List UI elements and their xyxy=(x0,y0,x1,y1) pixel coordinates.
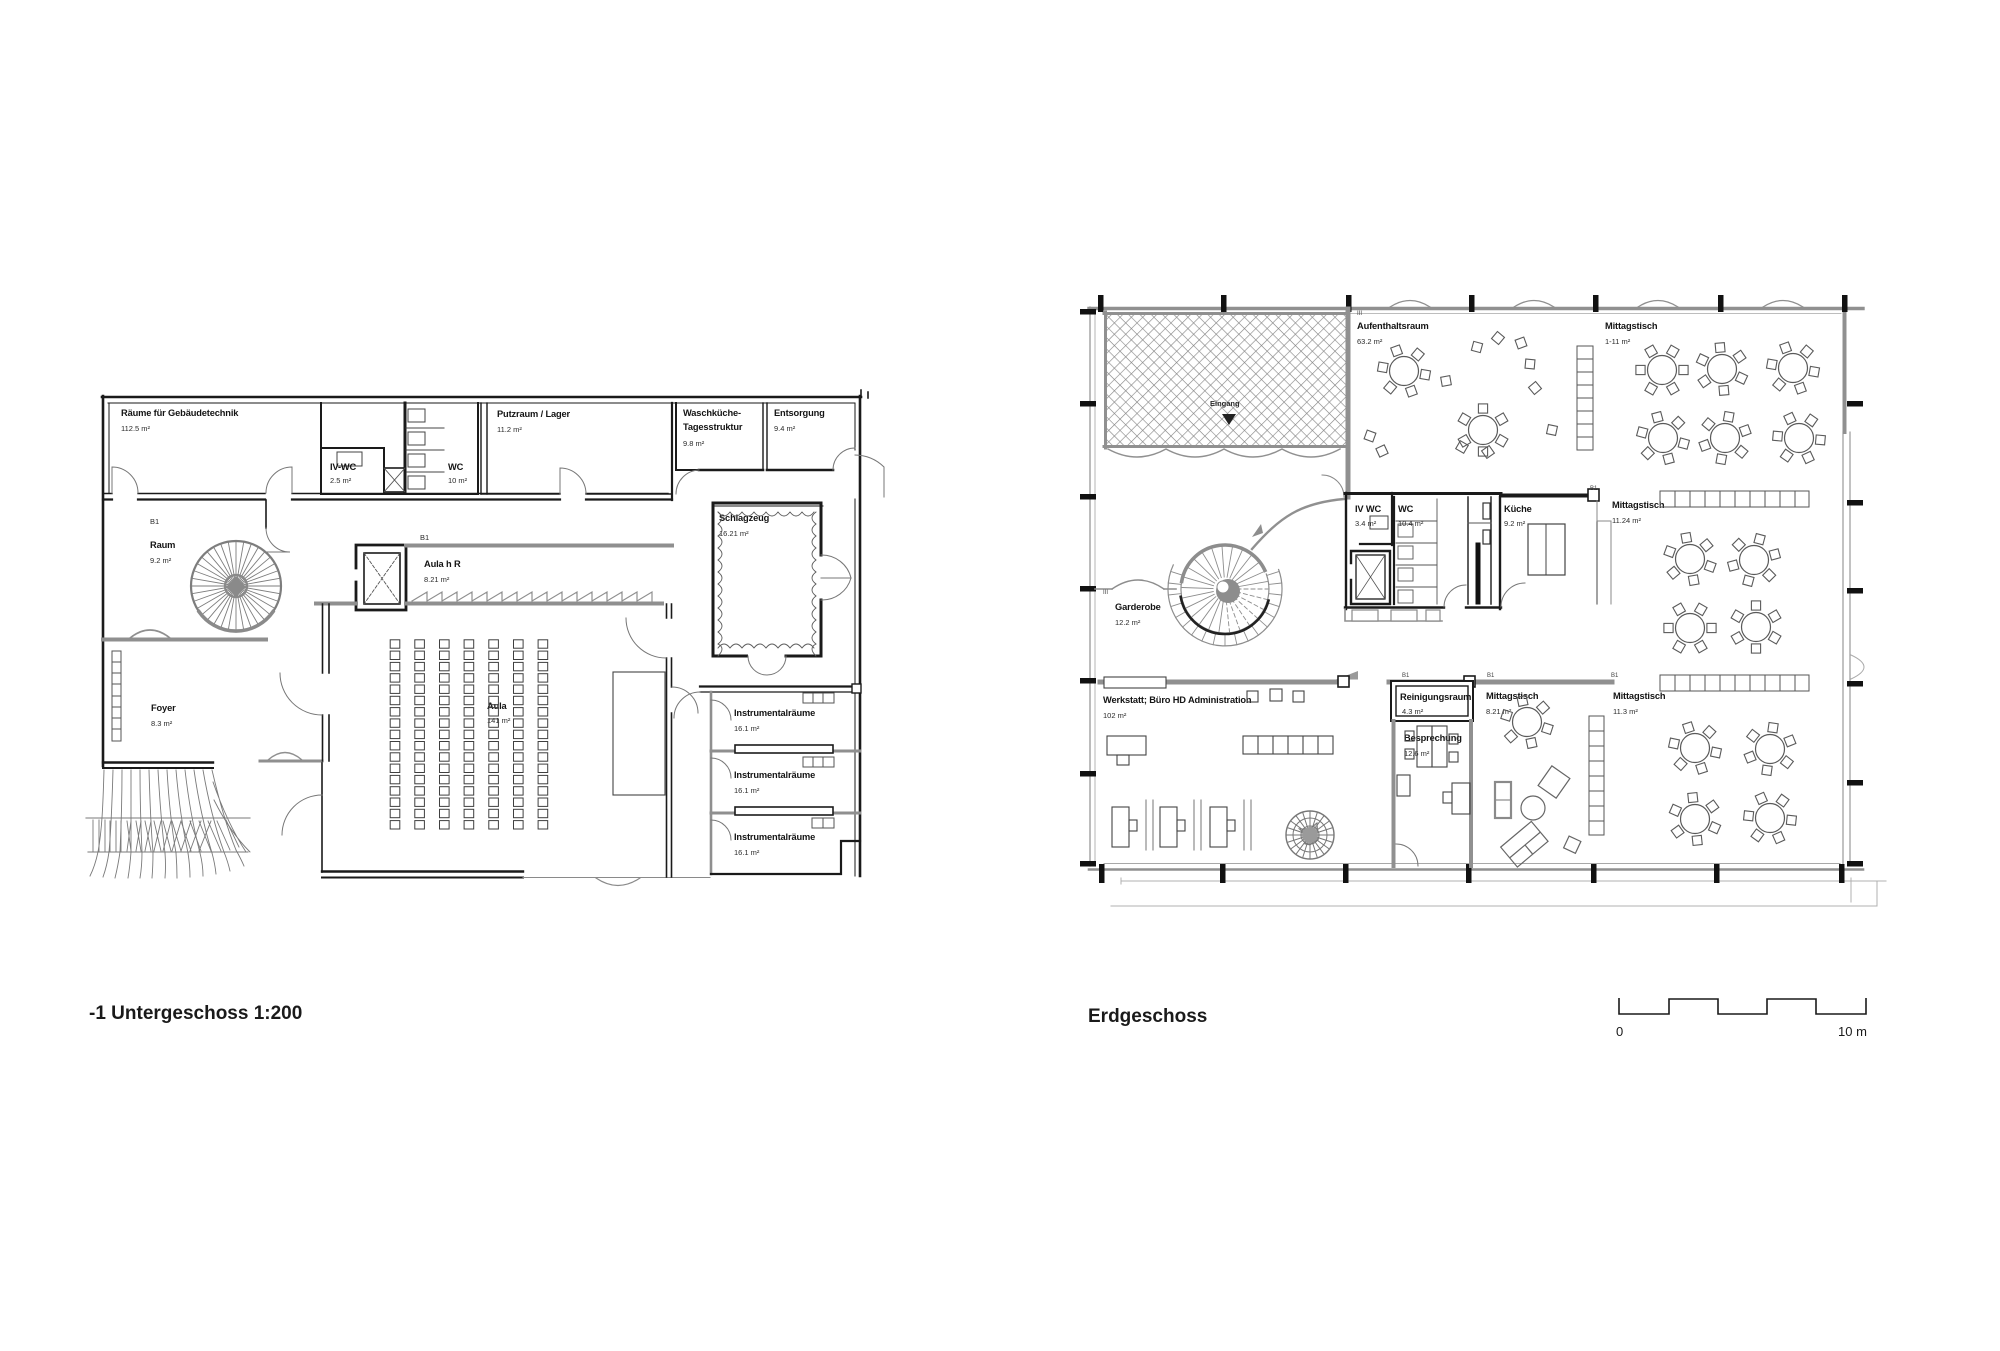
svg-text:9.2 m²: 9.2 m² xyxy=(1504,519,1526,528)
svg-text:Garderobe: Garderobe xyxy=(1115,602,1161,612)
svg-text:10.4 m²: 10.4 m² xyxy=(1398,519,1424,528)
svg-text:Waschküche-: Waschküche- xyxy=(683,408,741,418)
svg-text:WC: WC xyxy=(1398,504,1414,514)
svg-text:1-11 m²: 1-11 m² xyxy=(1605,337,1631,346)
svg-text:Entsorgung: Entsorgung xyxy=(774,408,825,418)
svg-text:141 m²: 141 m² xyxy=(487,716,511,725)
svg-text:IV-WC: IV-WC xyxy=(330,462,357,472)
svg-text:4.3 m²: 4.3 m² xyxy=(1402,707,1424,716)
svg-text:B1: B1 xyxy=(420,533,429,542)
svg-text:16.21 m²: 16.21 m² xyxy=(719,529,749,538)
svg-text:11.3 m²: 11.3 m² xyxy=(1613,707,1638,716)
svg-text:Instrumentalräume: Instrumentalräume xyxy=(734,832,815,842)
svg-text:11.2 m²: 11.2 m² xyxy=(497,425,522,434)
svg-text:Putzraum / Lager: Putzraum / Lager xyxy=(497,409,571,419)
svg-text:9.8 m²: 9.8 m² xyxy=(683,439,705,448)
svg-text:Aula h R: Aula h R xyxy=(424,559,461,569)
svg-text:B1: B1 xyxy=(1590,486,1598,492)
svg-text:63.2 m²: 63.2 m² xyxy=(1357,337,1383,346)
svg-text:0: 0 xyxy=(1616,1024,1623,1039)
svg-text:Eingang: Eingang xyxy=(1210,399,1240,408)
svg-text:Mittagstisch: Mittagstisch xyxy=(1613,691,1666,701)
svg-text:III: III xyxy=(1357,311,1362,317)
svg-text:3.4 m²: 3.4 m² xyxy=(1355,519,1377,528)
svg-text:9.4 m²: 9.4 m² xyxy=(774,424,796,433)
svg-text:8.3 m²: 8.3 m² xyxy=(151,719,173,728)
svg-text:Werkstatt; Büro HD Administrat: Werkstatt; Büro HD Administration xyxy=(1103,695,1252,705)
svg-text:Erdgeschoss: Erdgeschoss xyxy=(1088,1006,1207,1027)
svg-text:Reinigungsraum: Reinigungsraum xyxy=(1400,692,1471,702)
svg-text:10 m: 10 m xyxy=(1838,1024,1867,1039)
svg-text:8.21 m²: 8.21 m² xyxy=(424,575,450,584)
svg-text:16.1 m²: 16.1 m² xyxy=(734,848,760,857)
svg-text:Küche: Küche xyxy=(1504,504,1532,514)
svg-text:Instrumentalräume: Instrumentalräume xyxy=(734,770,815,780)
svg-text:B1: B1 xyxy=(1611,673,1619,679)
svg-text:Foyer: Foyer xyxy=(151,703,176,713)
svg-text:Raum: Raum xyxy=(150,540,175,550)
svg-text:11.24 m²: 11.24 m² xyxy=(1612,516,1642,525)
svg-text:Mittagstisch: Mittagstisch xyxy=(1612,500,1665,510)
svg-text:WC: WC xyxy=(448,462,464,472)
svg-text:IV WC: IV WC xyxy=(1355,504,1382,514)
svg-text:12.2 m²: 12.2 m² xyxy=(1115,618,1141,627)
svg-text:Mittagstisch: Mittagstisch xyxy=(1486,691,1539,701)
svg-text:III: III xyxy=(1103,590,1108,596)
svg-text:Instrumentalräume: Instrumentalräume xyxy=(734,708,815,718)
svg-text:10 m²: 10 m² xyxy=(448,476,468,485)
svg-text:Mittagstisch: Mittagstisch xyxy=(1605,321,1658,331)
svg-text:B1: B1 xyxy=(150,517,159,526)
svg-text:Räume für Gebäudetechnik: Räume für Gebäudetechnik xyxy=(121,408,239,418)
svg-text:16.1 m²: 16.1 m² xyxy=(734,786,760,795)
svg-text:Aufenthaltsraum: Aufenthaltsraum xyxy=(1357,321,1429,331)
svg-text:112.5 m²: 112.5 m² xyxy=(121,424,151,433)
svg-text:2.5 m²: 2.5 m² xyxy=(330,476,352,485)
svg-text:102 m²: 102 m² xyxy=(1103,711,1127,720)
svg-text:Tagesstruktur: Tagesstruktur xyxy=(683,422,743,432)
svg-text:-1 Untergeschoss 1:200: -1 Untergeschoss 1:200 xyxy=(89,1003,302,1024)
svg-text:9.2 m²: 9.2 m² xyxy=(150,556,172,565)
svg-text:16.1 m²: 16.1 m² xyxy=(734,724,760,733)
svg-text:B1: B1 xyxy=(1487,673,1495,679)
svg-text:B1: B1 xyxy=(1402,673,1410,679)
svg-text:Aula: Aula xyxy=(487,701,508,711)
